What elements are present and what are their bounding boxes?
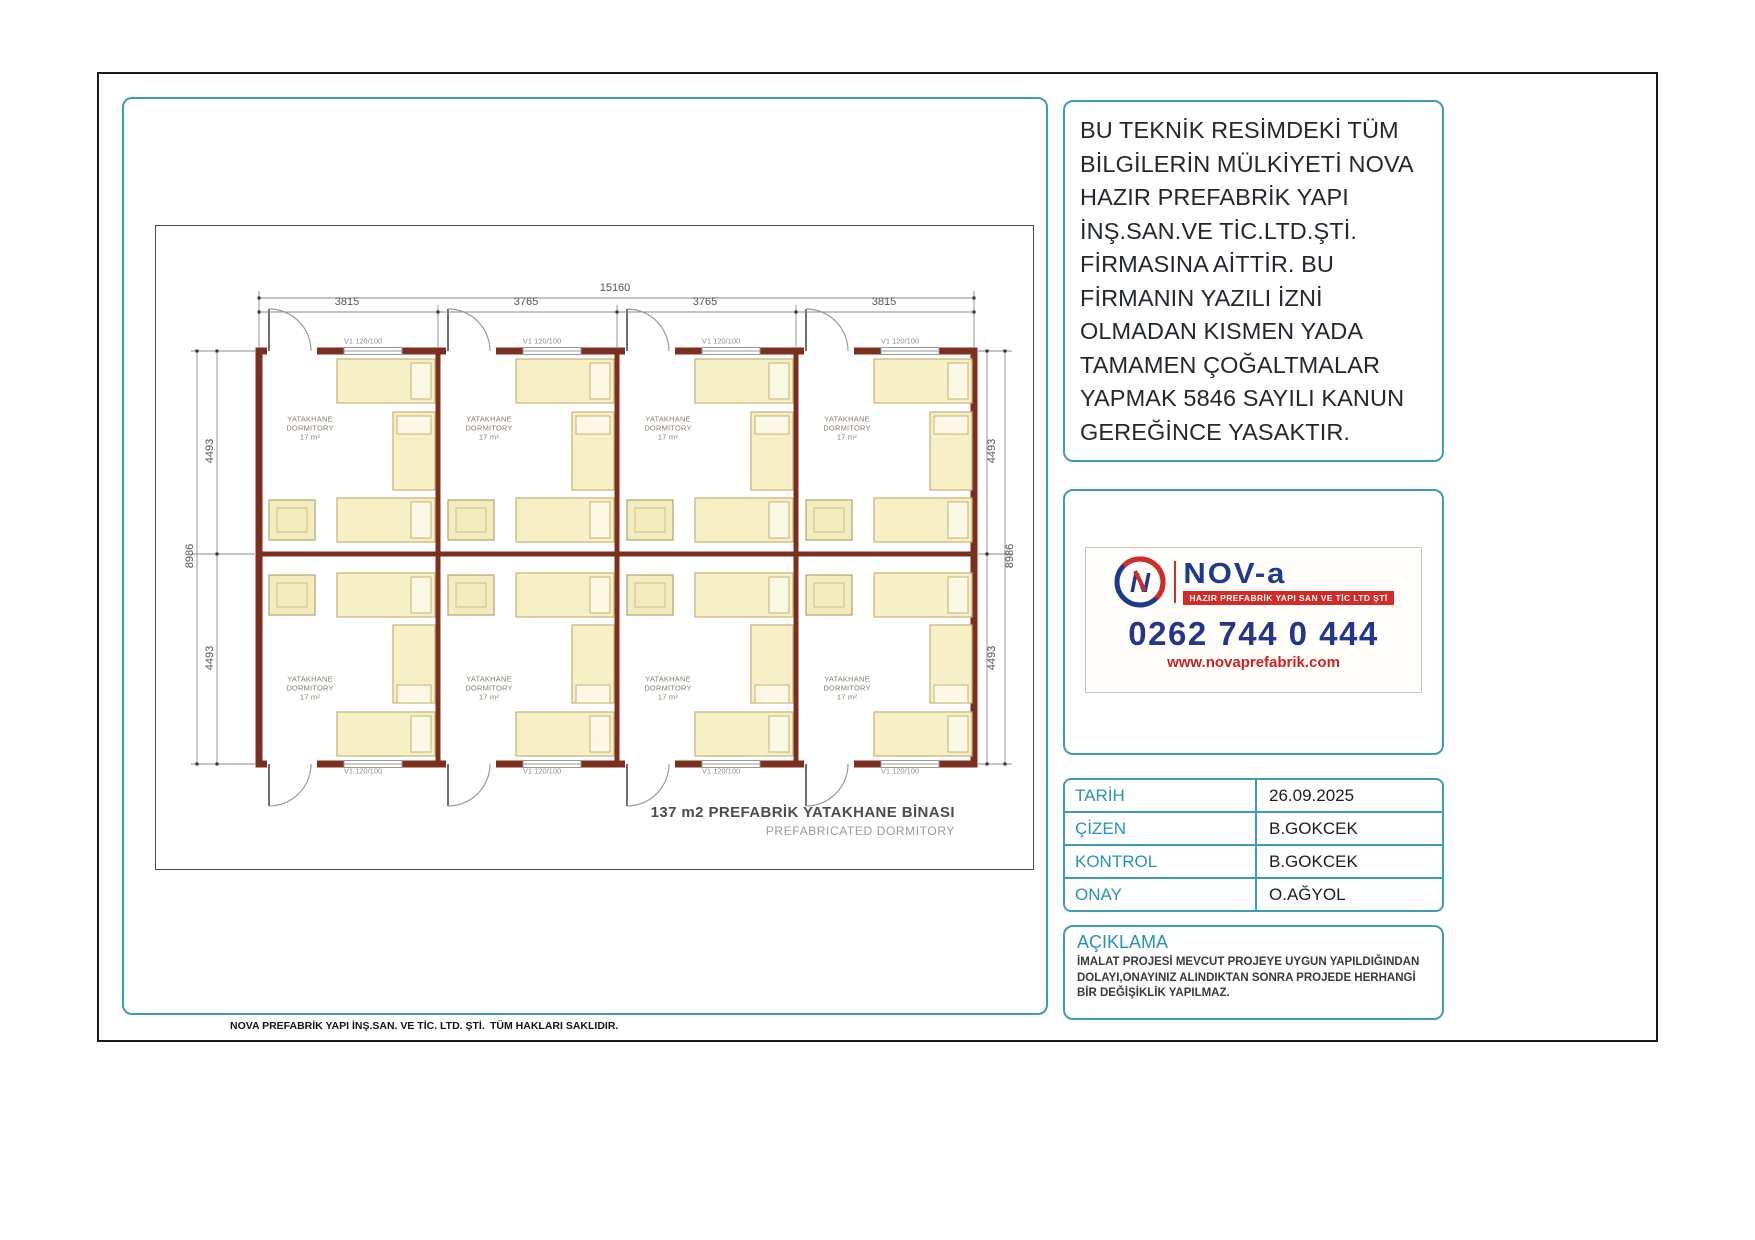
- title-block-table: TARİH 26.09.2025 ÇİZEN B.GOKCEK KONTROL …: [1063, 778, 1444, 912]
- remarks-box: AÇIKLAMA İMALAT PROJESİ MEVCUT PROJEYE U…: [1063, 925, 1444, 1020]
- window-label: V1 120/100: [344, 337, 382, 346]
- room-label-en: DORMITORY: [465, 684, 512, 693]
- row-label: TARİH: [1065, 780, 1257, 811]
- building-walls: [259, 351, 974, 764]
- room-label-en: DORMITORY: [644, 424, 691, 433]
- brand-banner: N NOV-a HAZIR PREFABRİK YAPI SAN VE TİC …: [1085, 547, 1422, 693]
- room-label: YATAKHANE DORMITORY 17 m²: [286, 415, 333, 442]
- room-label-area: 17 m²: [644, 693, 691, 702]
- legal-notice-box: BU TEKNİK RESİMDEKİ TÜM BİLGİLERİN MÜLKİ…: [1063, 100, 1444, 462]
- window-label: V1 120/100: [702, 337, 740, 346]
- footer-company: NOVA PREFABRİK YAPI İNŞ.SAN. VE TİC. LTD…: [230, 1020, 485, 1032]
- table-row-onay: ONAY O.AĞYOL: [1065, 877, 1442, 910]
- room-label-area: 17 m²: [823, 433, 870, 442]
- brand-logo-row: N NOV-a HAZIR PREFABRİK YAPI SAN VE TİC …: [1113, 554, 1393, 610]
- brand-phone: 0262 744 0 444: [1128, 615, 1378, 653]
- drawing-sheet: { "sheet": { "footer_left": "NOVA PREFAB…: [0, 0, 1755, 1240]
- footer-rights: TÜM HAKLARI SAKLIDIR.: [490, 1020, 618, 1032]
- room-label: YATAKHANE DORMITORY 17 m²: [644, 675, 691, 702]
- room-label: YATAKHANE DORMITORY 17 m²: [644, 415, 691, 442]
- room-label-tr: YATAKHANE: [465, 415, 512, 424]
- dim-segment-2: 3765: [514, 296, 538, 308]
- room-label-area: 17 m²: [286, 433, 333, 442]
- row-label: ÇİZEN: [1065, 813, 1257, 844]
- nova-logo-icon: N: [1113, 555, 1167, 609]
- room-label-tr: YATAKHANE: [823, 675, 870, 684]
- row-value: 26.09.2025: [1257, 780, 1442, 811]
- room-label-tr: YATAKHANE: [465, 675, 512, 684]
- room-label: YATAKHANE DORMITORY 17 m²: [286, 675, 333, 702]
- module-4: [804, 309, 972, 806]
- dim-segment-4: 3815: [872, 296, 896, 308]
- plan-subtitle: PREFABRICATED DORMITORY: [651, 824, 955, 838]
- room-label-area: 17 m²: [644, 433, 691, 442]
- room-label: YATAKHANE DORMITORY 17 m²: [465, 415, 512, 442]
- table-row-cizen: ÇİZEN B.GOKCEK: [1065, 811, 1442, 844]
- row-value: B.GOKCEK: [1257, 813, 1442, 844]
- window-label: V1 120/100: [881, 337, 919, 346]
- plan-title: 137 m2 PREFABRİK YATAKHANE BİNASI: [651, 804, 955, 821]
- room-label: YATAKHANE DORMITORY 17 m²: [823, 675, 870, 702]
- room-label-area: 17 m²: [465, 693, 512, 702]
- table-row-tarih: TARİH 26.09.2025: [1065, 780, 1442, 811]
- dim-left-upper: 4493: [204, 439, 216, 463]
- dim-right-lower: 4493: [986, 646, 998, 670]
- row-label: ONAY: [1065, 879, 1257, 910]
- room-label-tr: YATAKHANE: [286, 675, 333, 684]
- table-row-kontrol: KONTROL B.GOKCEK: [1065, 844, 1442, 877]
- dim-total-width: 15160: [600, 282, 631, 294]
- window-label: V1 120/100: [523, 767, 561, 776]
- room-label-en: DORMITORY: [823, 424, 870, 433]
- window-label: V1 120/100: [702, 767, 740, 776]
- brand-divider: [1174, 561, 1176, 603]
- room-label-en: DORMITORY: [644, 684, 691, 693]
- room-label-tr: YATAKHANE: [644, 415, 691, 424]
- dim-left-total: 8986: [184, 544, 196, 568]
- room-label: YATAKHANE DORMITORY 17 m²: [465, 675, 512, 702]
- room-label-en: DORMITORY: [286, 424, 333, 433]
- room-label-tr: YATAKHANE: [644, 675, 691, 684]
- row-label: KONTROL: [1065, 846, 1257, 877]
- brand-wordmark: NOV-a: [1183, 560, 1393, 588]
- brand-wordmark-col: NOV-a HAZIR PREFABRİK YAPI SAN VE TİC LT…: [1183, 559, 1393, 605]
- brand-website: www.novaprefabrik.com: [1167, 654, 1340, 671]
- dim-segment-3: 3765: [693, 296, 717, 308]
- window-label: V1 120/100: [344, 767, 382, 776]
- dim-right-upper: 4493: [986, 439, 998, 463]
- remarks-heading: AÇIKLAMA: [1077, 932, 1430, 953]
- dim-left-lower: 4493: [204, 646, 216, 670]
- window-label: V1 120/100: [881, 767, 919, 776]
- room-label-area: 17 m²: [465, 433, 512, 442]
- module-2: [446, 309, 614, 806]
- plan-title-block: 137 m2 PREFABRİK YATAKHANE BİNASI PREFAB…: [651, 804, 955, 838]
- brand-tagline: HAZIR PREFABRİK YAPI SAN VE TİC LTD ŞTİ: [1183, 591, 1393, 605]
- window-label: V1 120/100: [523, 337, 561, 346]
- room-label-tr: YATAKHANE: [823, 415, 870, 424]
- dim-right-total: 8986: [1004, 544, 1016, 568]
- room-label-en: DORMITORY: [823, 684, 870, 693]
- room-label-en: DORMITORY: [286, 684, 333, 693]
- room-label-en: DORMITORY: [465, 424, 512, 433]
- room-label-area: 17 m²: [823, 693, 870, 702]
- row-value: B.GOKCEK: [1257, 846, 1442, 877]
- row-value: O.AĞYOL: [1257, 879, 1442, 910]
- module-1: [267, 309, 435, 806]
- legal-notice-text: BU TEKNİK RESİMDEKİ TÜM BİLGİLERİN MÜLKİ…: [1080, 114, 1427, 449]
- remarks-body: İMALAT PROJESİ MEVCUT PROJEYE UYGUN YAPI…: [1077, 955, 1430, 1002]
- room-label-area: 17 m²: [286, 693, 333, 702]
- room-label-tr: YATAKHANE: [286, 415, 333, 424]
- dim-segment-1: 3815: [335, 296, 359, 308]
- module-3: [625, 309, 793, 806]
- room-label: YATAKHANE DORMITORY 17 m²: [823, 415, 870, 442]
